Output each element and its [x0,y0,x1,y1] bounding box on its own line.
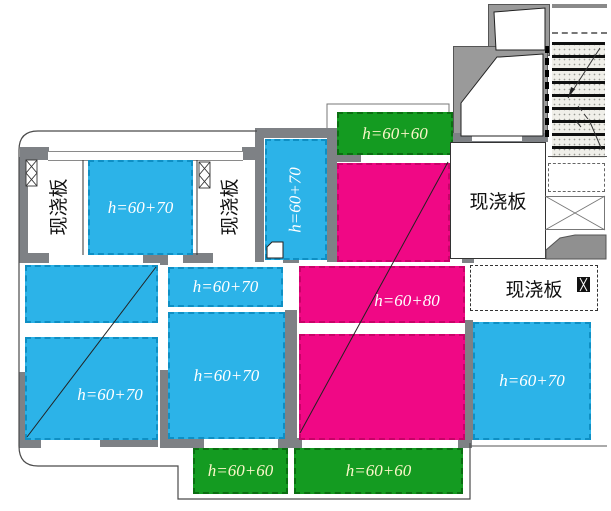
slab-label: h=60+70 [108,198,173,218]
slab-label: h=60+70 [194,366,259,386]
slab-label: h=60+60 [346,461,411,481]
pink-part-lower[interactable] [299,334,465,440]
slab-blue-center[interactable]: h=60+70 [168,312,285,439]
slab-label: h=60+60 [208,461,273,481]
wall-segment [160,370,168,438]
room-cast-bottom[interactable]: 现浇板 [470,265,598,311]
dashed-opening-box [548,163,605,192]
room-label: 现浇板 [44,179,71,236]
slab-green-bottom-left[interactable]: h=60+60 [193,448,288,494]
slab-label: h=60+60 [362,124,427,144]
slab-green-top[interactable]: h=60+60 [337,112,453,155]
floor-line [548,156,607,157]
slab-label: h=60+80 [357,291,457,311]
room-label: 现浇板 [505,275,562,302]
wall-segment [285,310,297,440]
wall-segment [465,320,473,440]
wall-segment [255,128,337,138]
slab-pink-large[interactable]: h=60+80 [299,158,465,440]
wall-segment [19,440,41,448]
slab-label: h=60+70 [499,371,564,391]
slab-label: h=60+70 [60,385,160,405]
room-label: 现浇板 [469,187,526,214]
slab-blue-upper-center[interactable]: h=60+70 [168,267,283,307]
slab-blue-top-left[interactable]: h=60+70 [88,160,193,255]
stair-hatch[interactable] [552,42,605,158]
wall-segment [100,440,158,447]
slab-blue-left-large[interactable]: h=60+70 [25,265,158,440]
wall-opening [472,134,522,141]
slab-label: h=60+70 [193,277,258,297]
room-cast-mid[interactable]: 现浇板 [198,177,258,237]
wall-segment [552,4,607,8]
room-cast-left[interactable]: 现浇板 [27,177,87,237]
room-cast-right[interactable]: 现浇板 [450,142,546,259]
slab-green-bottom-center[interactable]: h=60+60 [294,448,463,494]
pink-part-upper[interactable] [337,163,450,262]
dashed-line [552,32,607,34]
floor-plan-canvas: h=60+70 h=60+70 h=60+60 h=60+80 h=60+70 … [0,0,611,511]
ramp-wedge [546,235,606,259]
shaft-x-box [545,196,605,230]
wall-segment [160,438,204,448]
stair-wall-lower-box [453,46,548,142]
slab-blue-right[interactable]: h=60+70 [473,322,591,440]
room-label: 现浇板 [215,179,242,236]
blue-left-part-upper[interactable] [25,265,158,323]
wall-segment [19,253,49,263]
